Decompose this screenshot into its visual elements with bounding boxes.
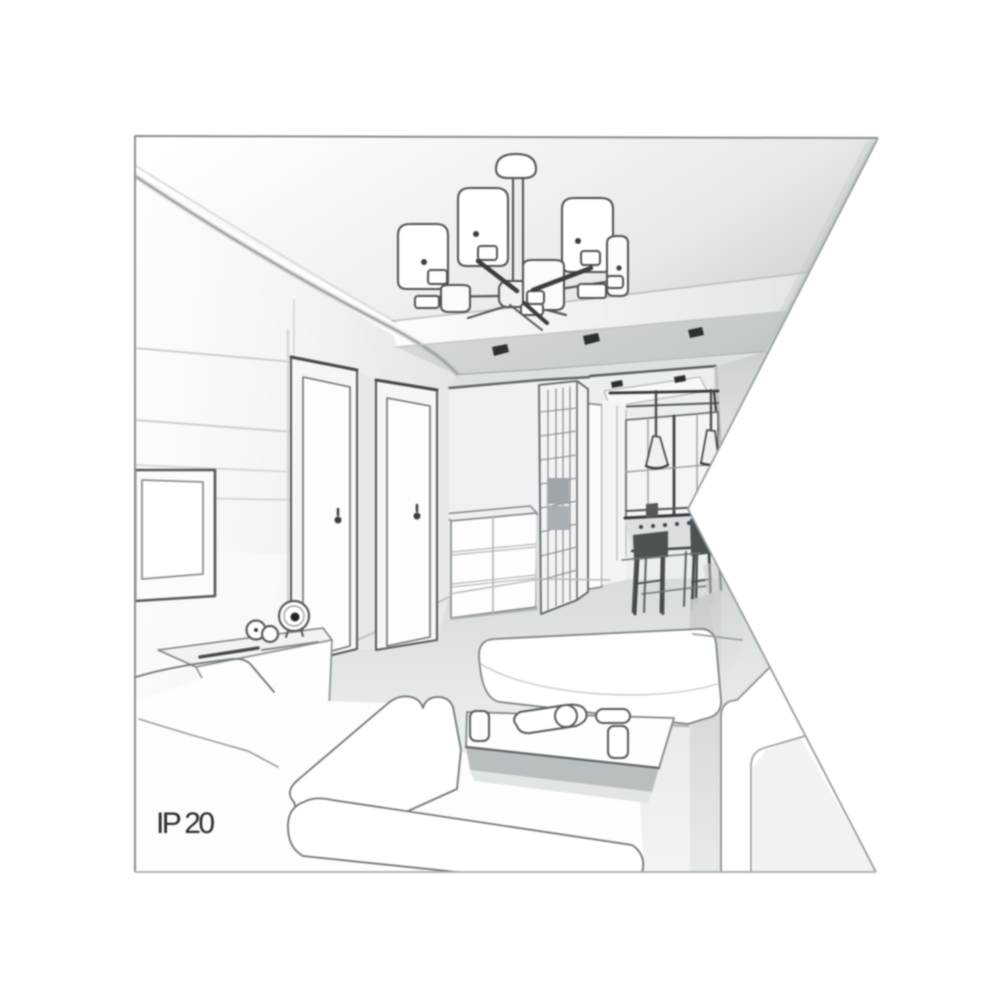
svg-text:IP 20: IP 20 xyxy=(156,807,215,840)
